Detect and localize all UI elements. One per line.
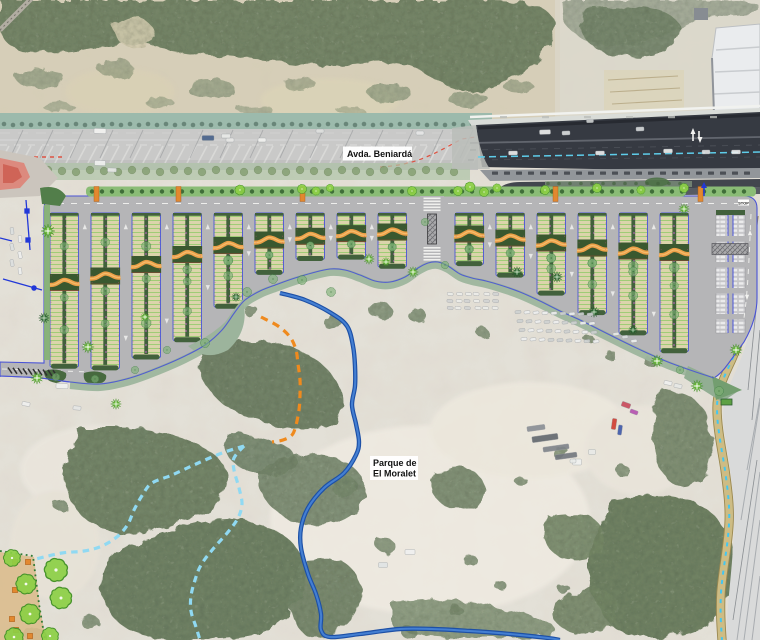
- svg-text:STOP: STOP: [738, 200, 749, 205]
- svg-text:Avda. Beniardá: Avda. Beniardá: [347, 149, 413, 159]
- svg-text:El Moralet: El Moralet: [373, 469, 416, 479]
- svg-text:Parque de: Parque de: [373, 458, 417, 468]
